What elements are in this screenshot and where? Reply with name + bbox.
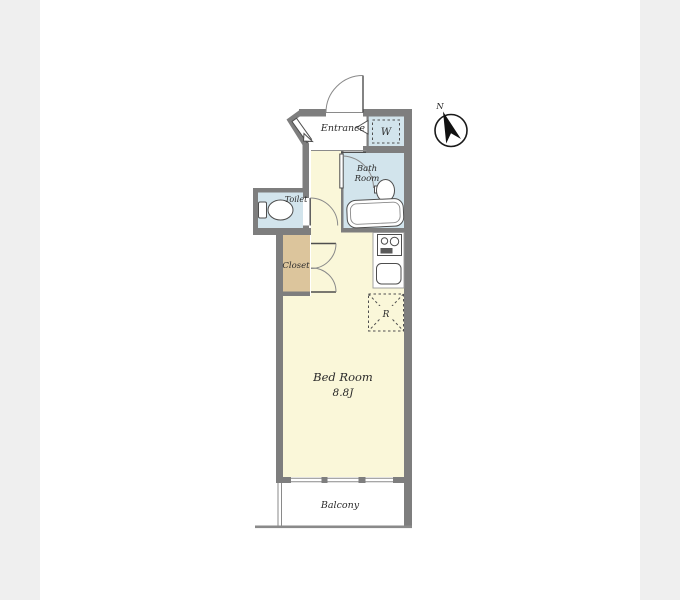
balcony-bottom-rail: [255, 526, 412, 529]
bathtub-icon: [346, 198, 404, 228]
window-mullion-2: [359, 477, 366, 483]
bedroom-label: Bed Room: [312, 370, 373, 384]
balcony-label: Balcony: [320, 500, 360, 511]
wall-below-washer: [363, 146, 404, 153]
wall-closet-bottom: [276, 292, 310, 297]
bathroom-label-line2: Room: [354, 174, 380, 184]
bath-door-leaf: [340, 154, 343, 188]
right-gutter: [640, 0, 680, 600]
wall-toilet-left: [253, 188, 258, 235]
stove-grill: [381, 248, 393, 254]
washer-label: W: [381, 127, 392, 138]
toilet-tank: [259, 202, 267, 218]
toilet-label: Toilet: [285, 195, 308, 204]
refrigerator-label: R: [382, 310, 390, 320]
floor-plan-page: N Entrance W Bath Room Toilet Closet Bed…: [0, 0, 680, 600]
bedroom-size-label: 8.8J: [333, 387, 355, 399]
wall-bedroom-left: [276, 296, 283, 483]
wall-bath-bottom: [341, 228, 404, 233]
floor-plan: N Entrance W Bath Room Toilet Closet Bed…: [0, 0, 680, 600]
wall-toilet-door-jamb-bottom: [303, 226, 309, 230]
bathroom-label-line1: Bath: [356, 164, 377, 174]
entrance-label: Entrance: [320, 123, 366, 134]
wall-bath-left-lower: [341, 188, 344, 233]
window-pier-right: [393, 477, 404, 483]
wall-right: [404, 109, 412, 528]
left-gutter: [0, 0, 40, 600]
north-label: N: [435, 102, 444, 112]
wall-top-left: [299, 109, 326, 117]
wall-toilet-bottom: [253, 228, 311, 235]
window-mullion-1: [322, 477, 328, 483]
wall-toilet-top: [253, 188, 309, 193]
kitchen-sink: [377, 264, 402, 285]
window-pier-left: [276, 477, 291, 483]
closet-label: Closet: [282, 261, 310, 271]
